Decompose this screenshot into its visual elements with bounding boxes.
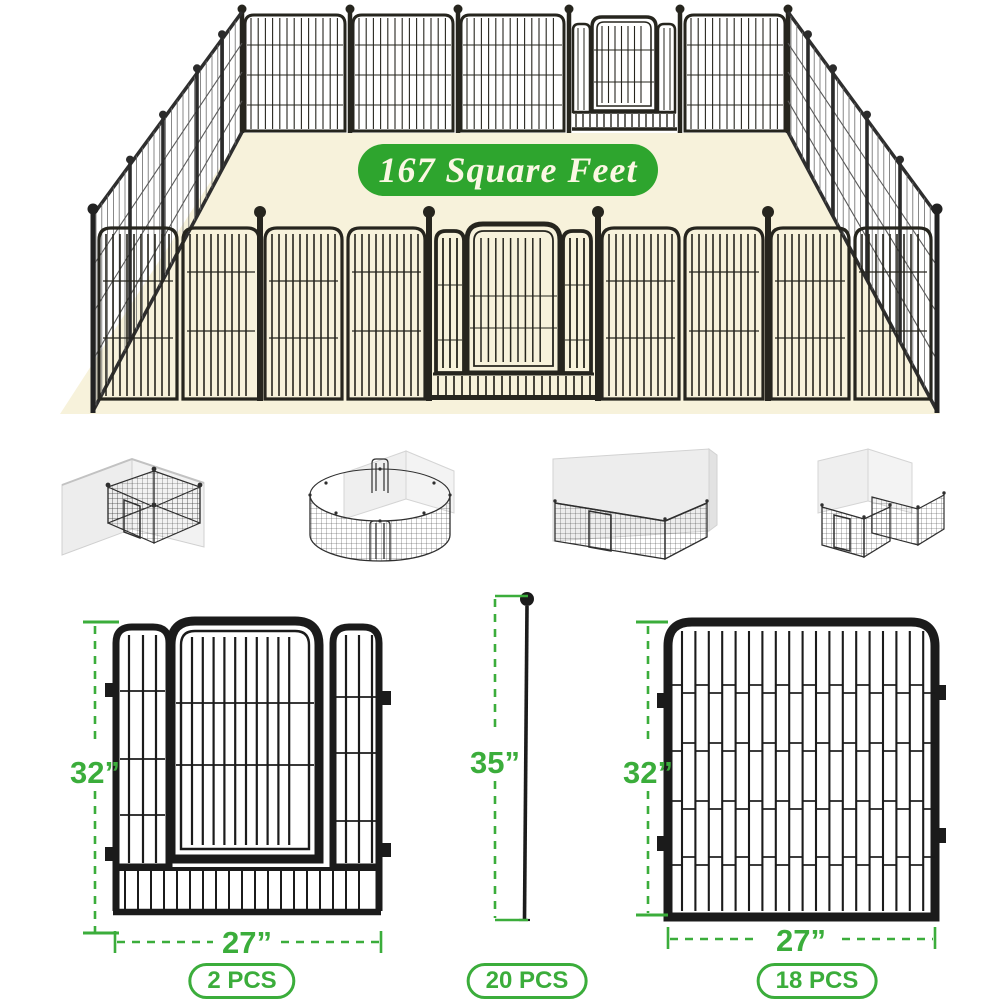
area-badge-label: 167 Square Feet — [378, 149, 637, 191]
area-badge: 167 Square Feet — [358, 144, 658, 196]
ground-stake-qty-badge: 20 PCS — [467, 963, 588, 999]
playpen-hero-illustration — [0, 0, 1000, 432]
panel-height-dimension: 32” — [623, 755, 673, 790]
config-corner-double-pen-thumbnail — [806, 443, 951, 578]
back-fence-row — [238, 5, 793, 134]
wall-left — [344, 451, 406, 519]
gate-panel-qty-badge: 2 PCS — [188, 963, 295, 999]
panel-width-dimension: 27” — [776, 923, 826, 958]
config-against-wall-pen-thumbnail — [545, 443, 720, 578]
fence-panel-drawing: 32” 27” — [610, 595, 950, 963]
product-infographic: 167 Square Feet — [0, 0, 1000, 1000]
config-corner-square-pen-thumbnail — [52, 443, 217, 578]
stake-height-dimension: 35” — [470, 745, 520, 780]
config-round-pen-thumbnail — [306, 443, 456, 578]
ground-stake-drawing: 35” — [440, 585, 560, 945]
gate-width-dimension: 27” — [222, 925, 272, 960]
gate-height-dimension: 32” — [70, 755, 120, 790]
wall-side-edge — [709, 449, 717, 531]
gate-panel-drawing: 32” 27” — [55, 595, 395, 963]
fence-panel-qty-badge: 18 PCS — [757, 963, 878, 999]
wall-left — [818, 449, 868, 513]
